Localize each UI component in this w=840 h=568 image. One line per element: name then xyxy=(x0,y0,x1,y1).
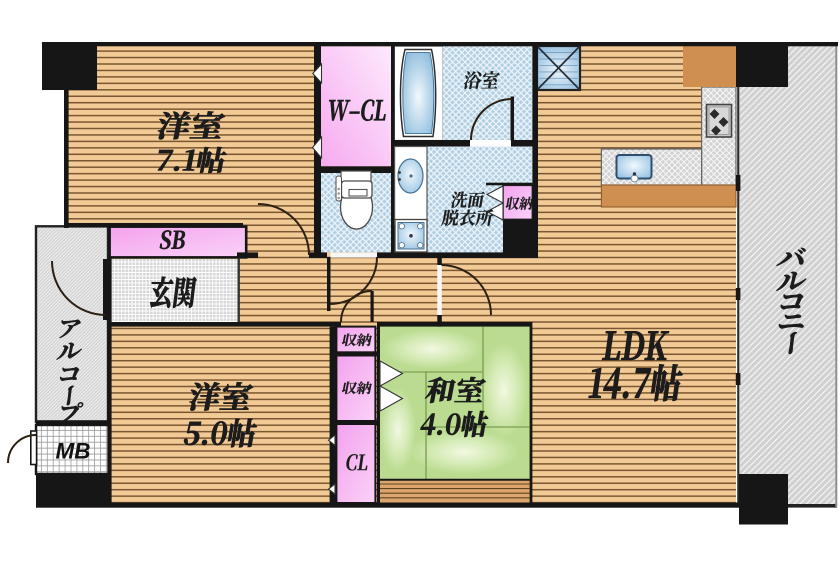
svg-text:MB: MB xyxy=(56,439,91,464)
